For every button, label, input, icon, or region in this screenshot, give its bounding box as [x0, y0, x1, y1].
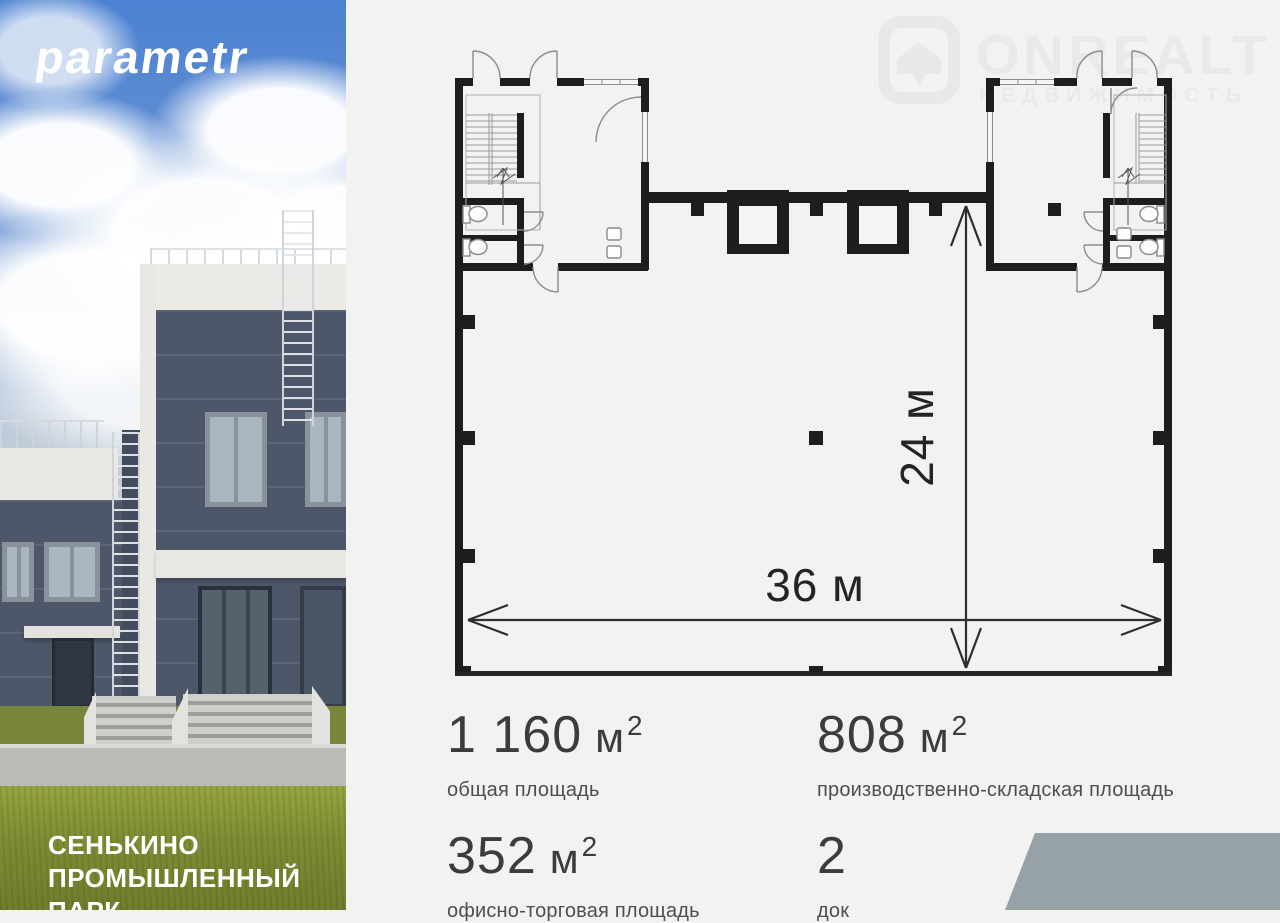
building-parapet — [140, 264, 346, 312]
road — [0, 744, 346, 792]
stat-value: 352 — [447, 827, 537, 885]
stat-unit-sup: 2 — [582, 831, 599, 862]
project-name: СЕНЬКИНО ПРОМЫШЛЕННЫЙ ПАРК — [48, 829, 300, 910]
stat-unit: м — [920, 714, 950, 761]
parametr-logo: parametr — [32, 30, 252, 84]
sink-icon — [607, 228, 621, 240]
stat-unit-sup: 2 — [627, 710, 644, 741]
stat-value: 2 — [817, 827, 847, 885]
sink-icon — [607, 246, 621, 258]
stat-label: офисно-торговая площадь — [447, 900, 700, 923]
building-parapet — [0, 448, 118, 502]
project-name-line: СЕНЬКИНО — [48, 829, 300, 862]
stat-label: общая площадь — [447, 779, 644, 802]
stat-warehouse-area-number: 808м2 — [817, 708, 1174, 763]
stat-unit: м — [595, 714, 625, 761]
sink-icon — [1117, 228, 1131, 240]
corner-decoration — [1000, 833, 1280, 910]
entrance-door — [198, 586, 272, 708]
entrance-door — [52, 638, 94, 708]
plan-doors — [473, 51, 1157, 292]
stat-warehouse-area: 808м2 производственно-складская площадь — [817, 708, 1174, 802]
plan-windows — [584, 78, 1054, 162]
sink-icon — [1117, 246, 1131, 258]
stat-value: 1 160 — [447, 706, 582, 764]
roof-railing — [0, 420, 104, 450]
window — [44, 542, 100, 602]
building-pilaster — [140, 264, 156, 724]
stat-label: док — [817, 900, 862, 923]
width-dimension-label: 36 м — [765, 559, 865, 611]
stat-office-area: 352м2 офисно-торговая площадь — [447, 829, 700, 923]
entrance-stairs — [92, 696, 176, 748]
window — [2, 542, 34, 602]
facade-beam — [156, 550, 346, 578]
stat-dock-count: 2 док — [817, 829, 862, 923]
window — [205, 412, 267, 507]
hall-column — [809, 431, 823, 445]
building-photo: parametr СЕНЬКИНО ПРОМЫШЛЕННЫЙ ПАРК — [0, 0, 346, 910]
stat-total-area-number: 1 160м2 — [447, 708, 644, 763]
roof-ladder — [112, 432, 140, 732]
stat-office-area-number: 352м2 — [447, 829, 700, 884]
roof-ladder — [282, 210, 314, 426]
project-name-line: ПАРК — [48, 895, 300, 910]
stat-unit-sup: 2 — [952, 710, 969, 741]
window — [300, 586, 346, 708]
stat-total-area: 1 160м2 общая площадь — [447, 708, 644, 802]
height-dimension-label: 24 м — [891, 387, 943, 487]
stat-unit: м — [550, 835, 580, 882]
stat-dock-count-number: 2 — [817, 829, 862, 884]
entrance-canopy — [24, 626, 120, 638]
stat-label: производственно-складская площадь — [817, 779, 1174, 802]
stat-value: 808 — [817, 706, 907, 764]
window — [305, 412, 346, 507]
project-name-line: ПРОМЫШЛЕННЫЙ — [48, 862, 300, 895]
